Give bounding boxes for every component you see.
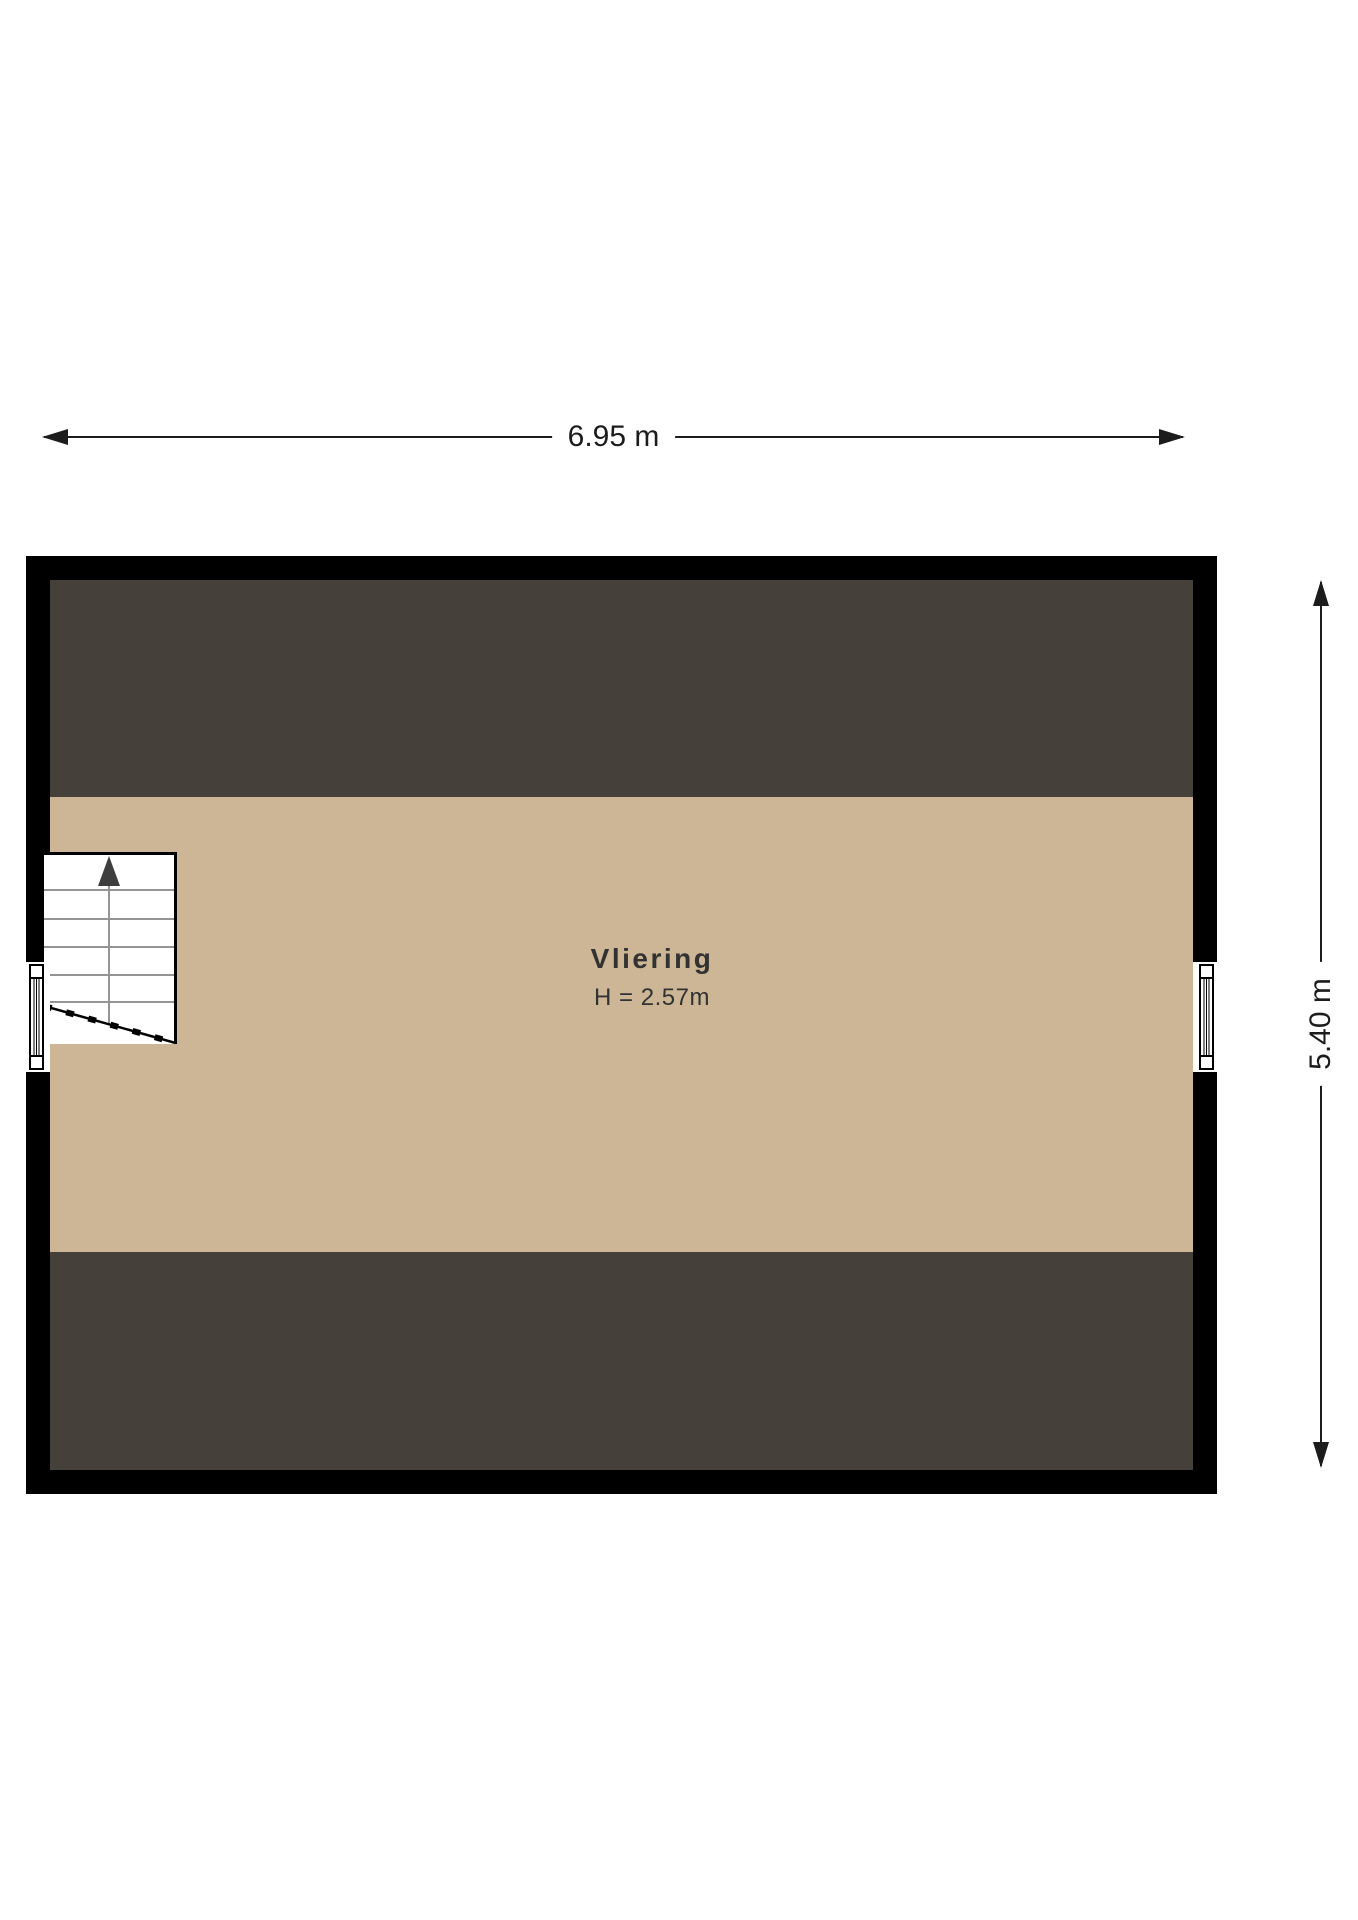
staircase — [44, 852, 177, 1044]
width-dimension-label: 6.95 m — [552, 420, 676, 454]
dimension-arrow-up-icon — [1313, 580, 1329, 606]
dimension-arrow-down-icon — [1313, 1442, 1329, 1468]
window-right-icon — [1193, 962, 1217, 1072]
room-name: Vliering — [452, 944, 852, 975]
dimension-arrow-right-icon — [1159, 429, 1185, 445]
sloped-ceiling-top — [50, 580, 1193, 797]
floor-area — [50, 797, 1193, 1252]
height-dimension: 5.40 m — [1313, 580, 1329, 1468]
width-dimension: 6.95 m — [42, 429, 1185, 445]
room-label: Vliering H = 2.57m — [452, 944, 852, 1011]
room-height-label: H = 2.57m — [452, 985, 852, 1011]
height-dimension-label: 5.40 m — [1304, 962, 1338, 1086]
attic-interior — [50, 580, 1193, 1470]
building-walls — [26, 556, 1217, 1494]
dimension-arrow-left-icon — [42, 429, 68, 445]
floorplan-canvas: 6.95 m 5.40 m Vliering H = 2.57m — [0, 0, 1358, 1920]
window-left-icon — [26, 962, 50, 1072]
sloped-ceiling-bottom — [50, 1252, 1193, 1470]
